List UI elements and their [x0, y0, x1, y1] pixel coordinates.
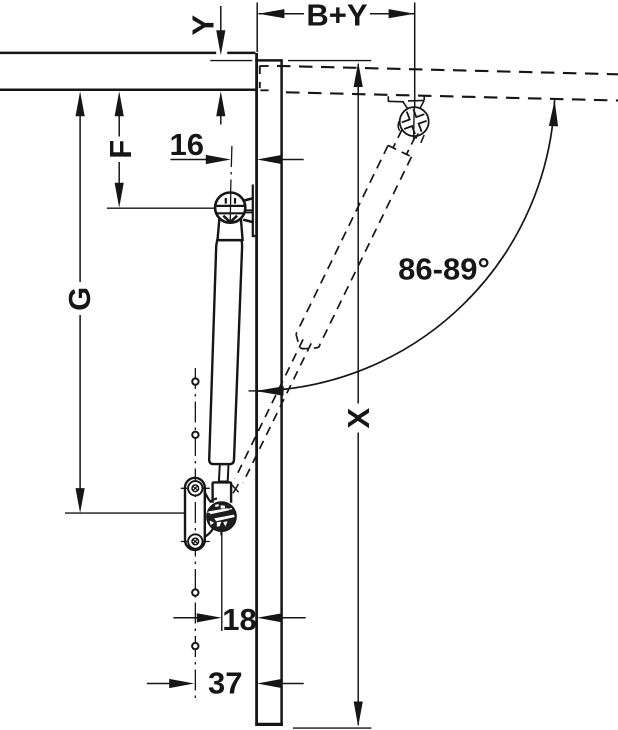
svg-text:F: F [103, 140, 138, 159]
svg-text:Y: Y [186, 14, 221, 35]
svg-text:B+Y: B+Y [306, 0, 367, 33]
svg-text:86-89°: 86-89° [398, 251, 490, 286]
svg-text:16: 16 [170, 127, 204, 162]
svg-text:G: G [62, 287, 97, 311]
svg-text:37: 37 [208, 666, 242, 701]
svg-text:18: 18 [222, 602, 256, 637]
svg-text:X: X [341, 407, 376, 428]
